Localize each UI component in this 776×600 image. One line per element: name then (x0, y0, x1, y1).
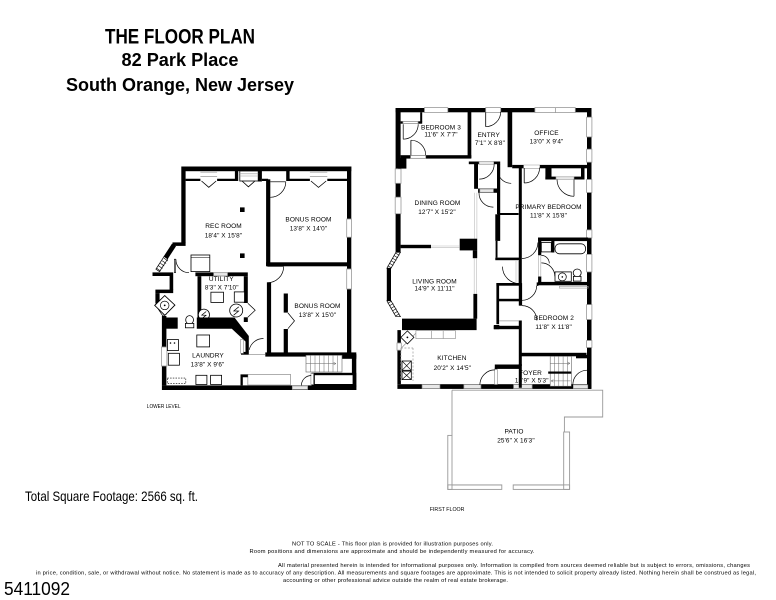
svg-text:Room positions and dimensions: Room positions and dimensions are approx… (250, 549, 535, 555)
svg-text:LAUNDRY: LAUNDRY (192, 352, 224, 359)
svg-text:FOYER: FOYER (519, 370, 542, 377)
svg-text:ENTRY: ENTRY (477, 132, 500, 139)
svg-text:KITCHEN: KITCHEN (437, 355, 466, 362)
svg-text:Total Square Footage: 2566 sq.: Total Square Footage: 2566 sq. ft. (25, 488, 198, 504)
svg-text:18'4" X 15'8": 18'4" X 15'8" (205, 232, 242, 239)
svg-text:PATIO: PATIO (504, 429, 523, 436)
svg-text:BEDROOM 3: BEDROOM 3 (421, 124, 461, 131)
svg-text:South Orange, New Jersey: South Orange, New Jersey (66, 74, 295, 95)
svg-text:7'1" X 8'8": 7'1" X 8'8" (475, 140, 505, 147)
svg-text:UTILITY: UTILITY (209, 276, 234, 283)
svg-text:11'8" X 15'8": 11'8" X 15'8" (530, 212, 567, 219)
svg-text:FIRST FLOOR: FIRST FLOOR (430, 507, 465, 513)
svg-text:THE FLOOR PLAN: THE FLOOR PLAN (105, 25, 255, 49)
svg-text:11'6" X 7'7": 11'6" X 7'7" (424, 131, 457, 138)
svg-text:82 Park Place: 82 Park Place (122, 50, 239, 70)
svg-text:LIVING ROOM: LIVING ROOM (412, 279, 456, 286)
svg-text:REC ROOM: REC ROOM (205, 223, 242, 230)
svg-text:25'6" X 16'3": 25'6" X 16'3" (497, 438, 534, 445)
svg-text:12'7" X 15'2": 12'7" X 15'2" (418, 209, 455, 216)
svg-text:20'2" X 14'5": 20'2" X 14'5" (434, 365, 471, 372)
svg-text:All material presented herein: All material presented herein is intende… (278, 563, 750, 569)
svg-text:NOT TO SCALE - This floor plan: NOT TO SCALE - This floor plan is provid… (292, 542, 493, 548)
svg-text:8'3" X 7'10": 8'3" X 7'10" (205, 284, 239, 291)
svg-text:BEDROOM 2: BEDROOM 2 (534, 315, 574, 322)
svg-text:BONUS ROOM: BONUS ROOM (294, 303, 340, 310)
svg-text:11'8" X 11'8": 11'8" X 11'8" (535, 324, 571, 331)
svg-text:13'8" X 14'0": 13'8" X 14'0" (290, 226, 327, 233)
svg-text:5411092: 5411092 (4, 578, 70, 599)
svg-text:15'9" X 5'3": 15'9" X 5'3" (515, 378, 549, 385)
svg-text:DINING ROOM: DINING ROOM (415, 200, 461, 207)
svg-text:13'0" X 9'4": 13'0" X 9'4" (530, 138, 564, 145)
svg-text:14'9" X 11'11": 14'9" X 11'11" (414, 286, 454, 293)
svg-text:LOWER LEVEL: LOWER LEVEL (147, 404, 181, 410)
svg-text:13'8" X 15'0": 13'8" X 15'0" (299, 312, 336, 319)
svg-text:BONUS ROOM: BONUS ROOM (285, 217, 331, 224)
svg-text:PRIMARY BEDROOM: PRIMARY BEDROOM (515, 204, 581, 211)
svg-text:accounting or other profession: accounting or other professional advice … (283, 578, 508, 584)
svg-text:in price, condition, sale, or: in price, condition, sale, or withdrawal… (36, 571, 756, 577)
svg-text:13'8" X 9'6": 13'8" X 9'6" (191, 361, 225, 368)
svg-text:OFFICE: OFFICE (534, 130, 559, 137)
